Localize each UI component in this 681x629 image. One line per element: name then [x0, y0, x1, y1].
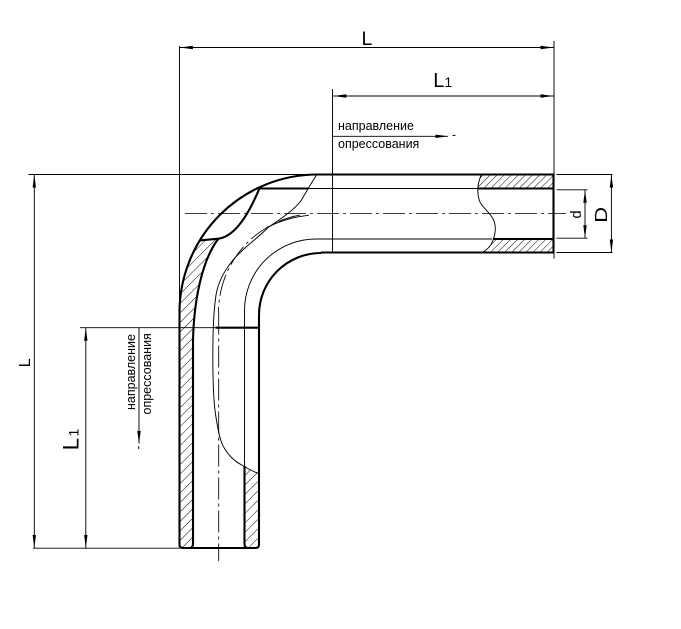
svg-text:d: d	[569, 210, 585, 218]
svg-text:L: L	[362, 28, 373, 50]
svg-text:опрессования: опрессования	[140, 333, 154, 414]
svg-text:L1: L1	[433, 70, 452, 92]
svg-text:направление: направление	[124, 334, 138, 410]
svg-text:опрессования: опрессования	[338, 137, 419, 151]
svg-text:L: L	[17, 358, 34, 367]
svg-text:направление: направление	[338, 119, 414, 133]
svg-text:D: D	[592, 207, 612, 223]
